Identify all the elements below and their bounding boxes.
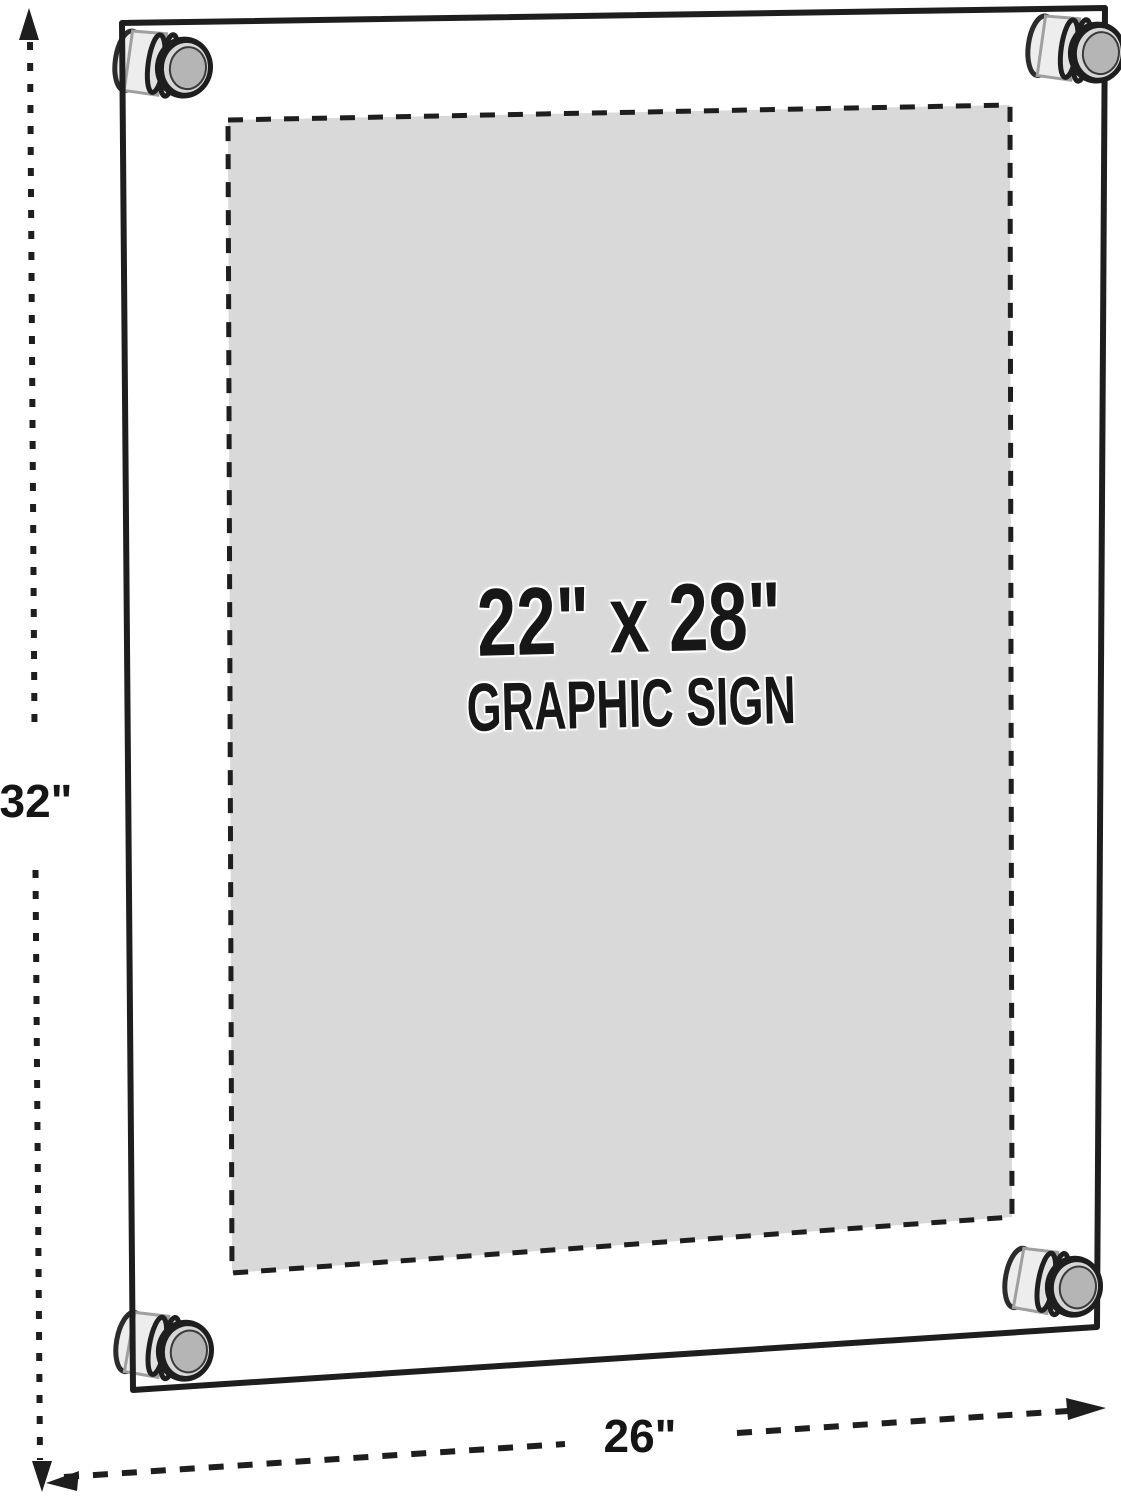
arrow-down-icon: [32, 1461, 52, 1492]
width-dimension-line-left: [64, 1444, 565, 1477]
arrow-left-icon: [46, 1471, 79, 1491]
width-dimension-label: 26": [596, 1413, 684, 1459]
frame-illustration: [0, 0, 1121, 1500]
sign-placeholder-text: 22" x 28" GRAPHIC SIGN: [328, 565, 932, 748]
height-dimension-line-upper: [30, 42, 35, 726]
product-dimension-diagram: 22" x 28" GRAPHIC SIGN 32" 26": [0, 0, 1121, 1500]
sign-size-label: 22" x 28": [406, 567, 852, 674]
width-dimension-line-right: [737, 1411, 1068, 1433]
arrow-right-icon: [1066, 1398, 1106, 1420]
arrow-up-icon: [19, 8, 39, 40]
sign-type-label: GRAPHIC SIGN: [432, 663, 830, 745]
height-dimension-line-lower: [36, 870, 41, 1460]
height-dimension-label: 32": [0, 778, 78, 824]
